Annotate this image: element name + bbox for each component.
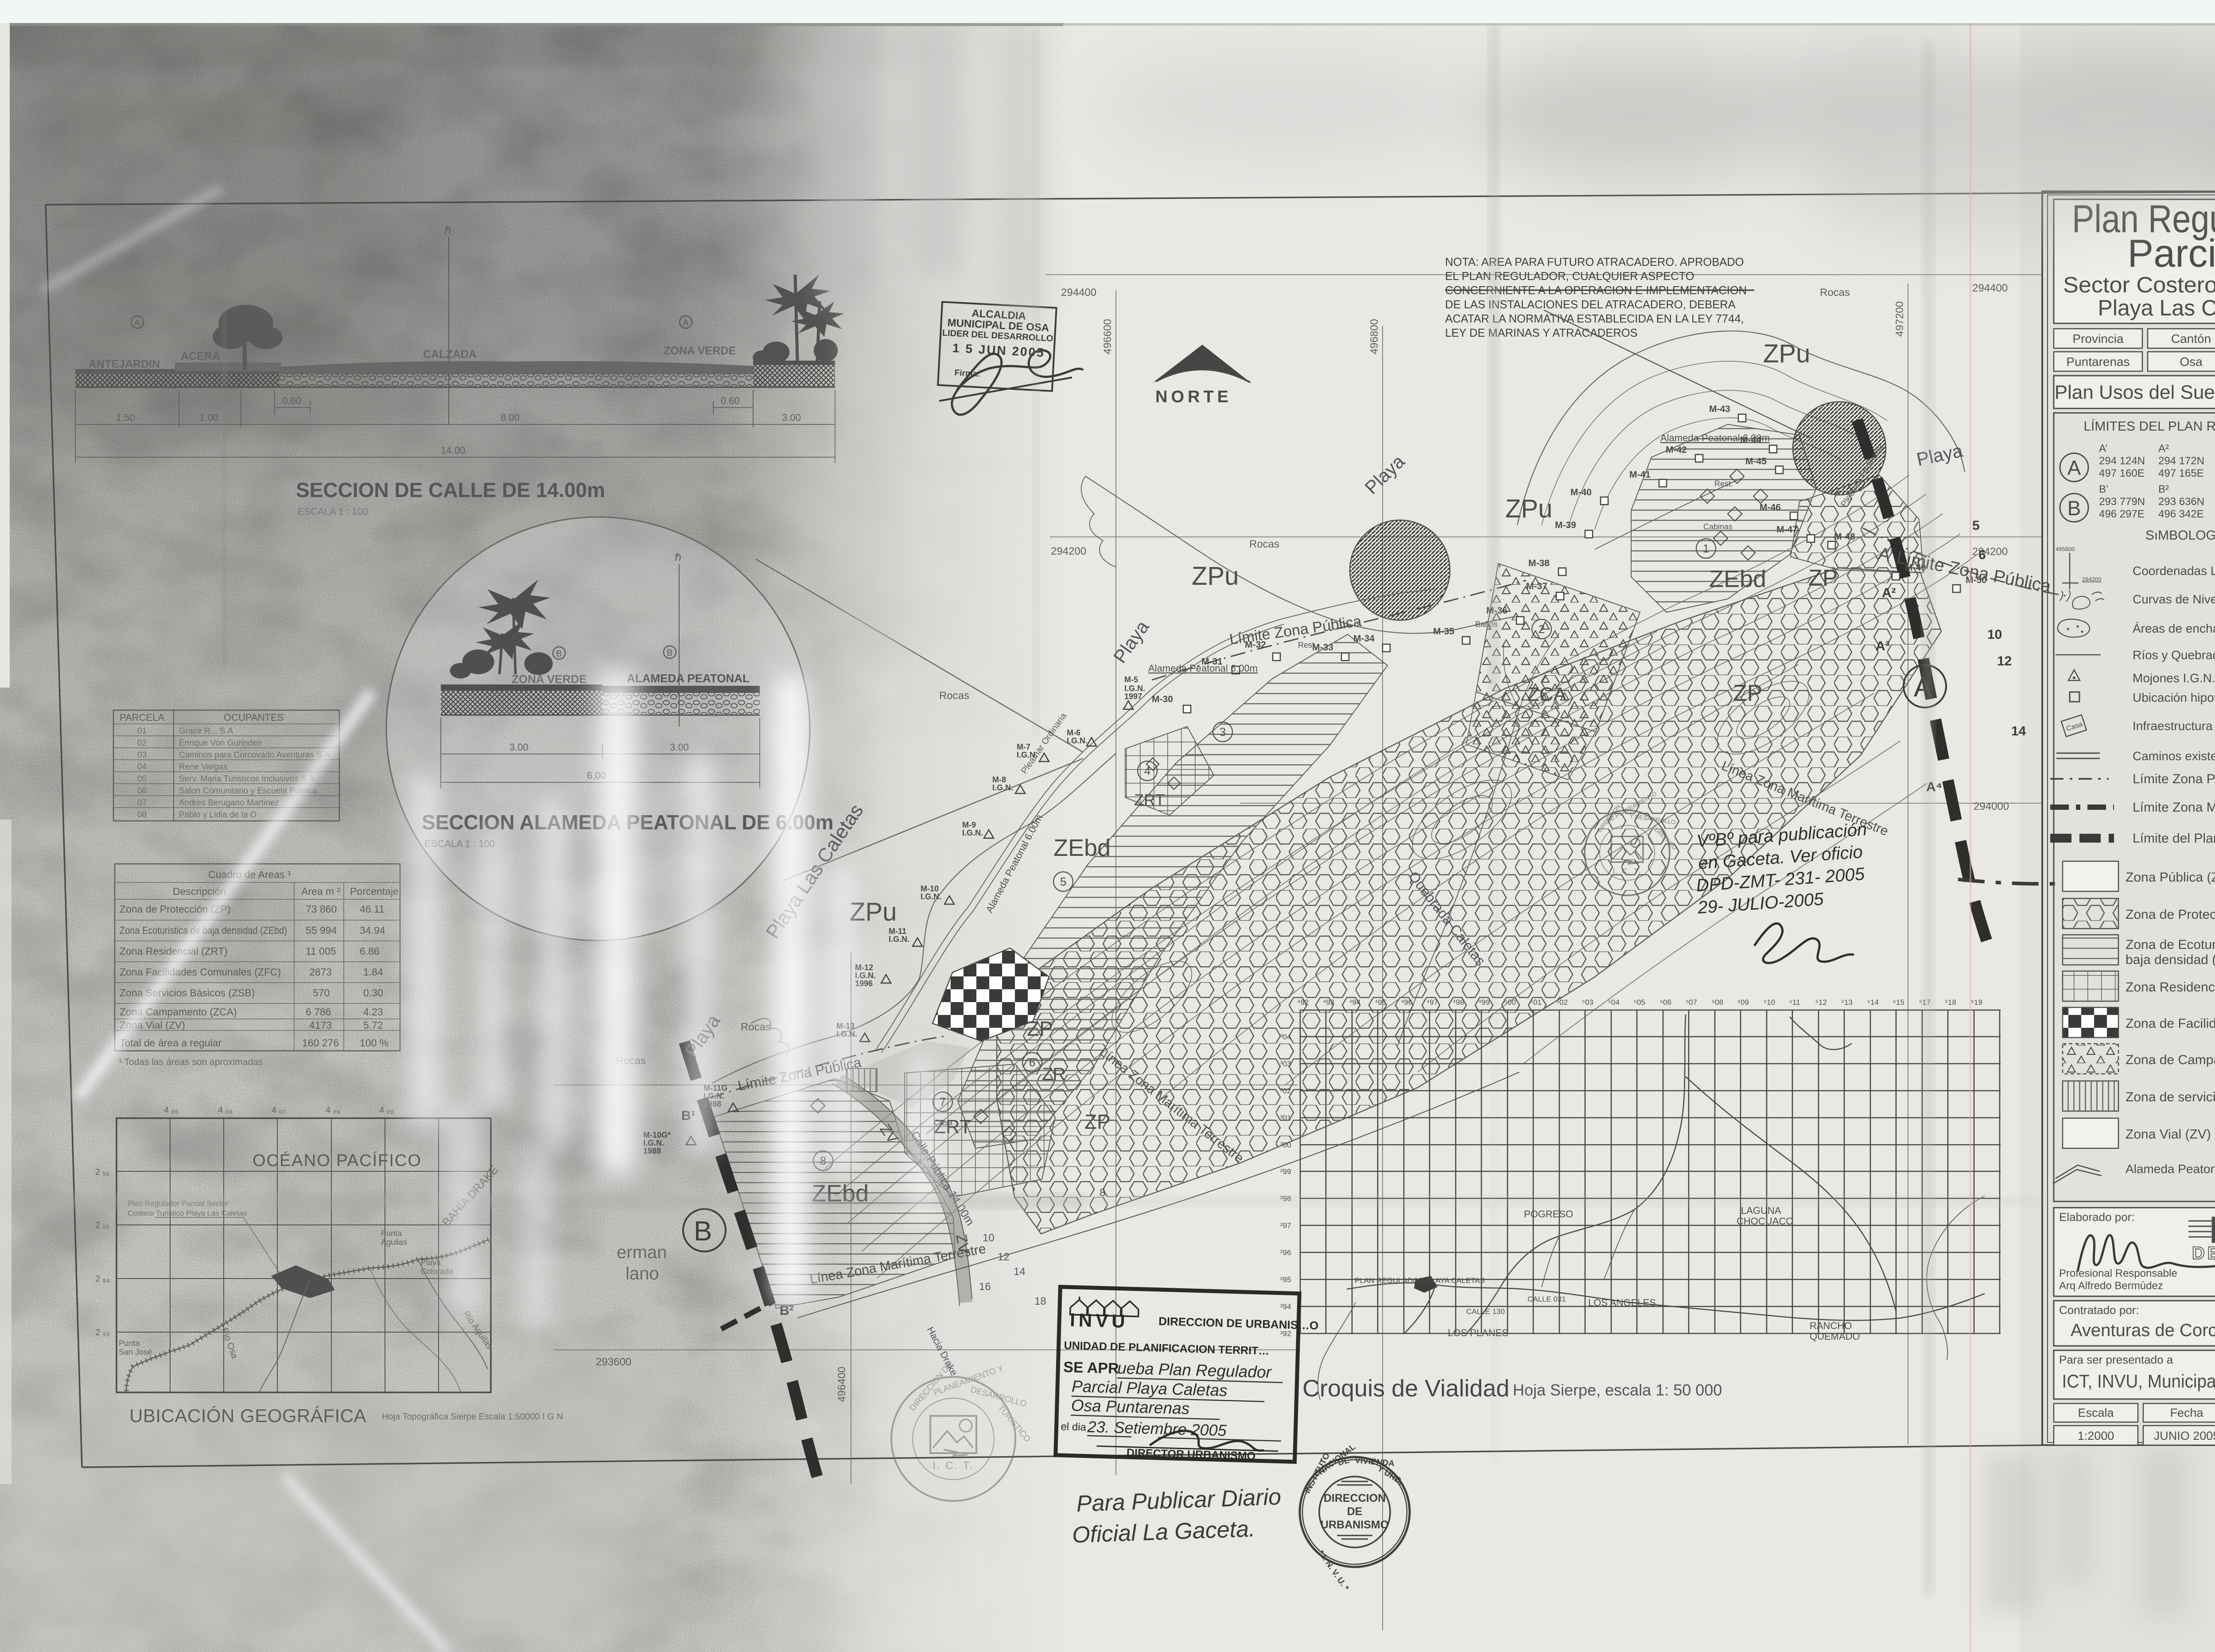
svg-text:3.00: 3.00 [782,412,801,423]
svg-text:07: 07 [137,798,147,808]
svg-text:ℏ: ℏ [675,552,681,564]
svg-text:M-39: M-39 [1555,520,1576,530]
svg-text:LOS ANGELES: LOS ANGELES [1588,1297,1656,1308]
svg-text:Porcentaje: Porcentaje [350,886,399,897]
svg-text:I.G.N.: I.G.N. [1067,736,1088,745]
svg-text:1: 1 [1703,542,1709,555]
svg-text:496 342E: 496 342E [2158,508,2204,520]
svg-text:B: B [2067,497,2081,520]
svg-text:Area m ²: Area m ² [301,886,341,897]
svg-text:11 005: 11 005 [306,945,336,957]
svg-text:ZPu: ZPu [1763,339,1810,368]
svg-text:⁴98: ⁴98 [1453,998,1464,1007]
svg-text:⁵01: ⁵01 [1530,998,1542,1007]
svg-text:M-48: M-48 [1834,532,1855,542]
svg-text:⁵04: ⁵04 [1608,998,1620,1007]
svg-text:³00: ³00 [1280,1141,1291,1149]
svg-text:Alameda Peatonal 6.00m: Alameda Peatonal 6.00m [1148,663,1258,674]
svg-text:M-7: M-7 [1017,742,1030,751]
svg-text:⁵18: ⁵18 [1945,998,1956,1007]
svg-text:Rest.: Rest. [1298,641,1317,649]
svg-text:Puntarenas: Puntarenas [2066,355,2130,369]
svg-text:4.23: 4.23 [363,1006,383,1018]
svg-text:M-10: M-10 [921,884,939,893]
svg-text:497 160E: 497 160E [2099,467,2145,479]
svg-text:M-35: M-35 [1433,626,1454,637]
svg-text:I. C. T.: I. C. T. [1613,867,1642,875]
svg-text:293 779N: 293 779N [2099,496,2145,508]
svg-text:M-6: M-6 [1067,728,1080,737]
svg-text:294400: 294400 [1972,282,2008,294]
svg-text:²99: ²99 [1280,1167,1291,1176]
svg-text:ANTEJARDIN: ANTEJARDIN [89,358,160,370]
svg-text:100 %: 100 % [360,1037,389,1049]
svg-text:SECCION DE CALLE DE 14.00m: SECCION DE CALLE DE 14.00m [296,478,605,501]
svg-text:4: 4 [1144,764,1150,777]
svg-text:I.G.N.: I.G.N. [889,935,909,944]
svg-text:I.G.N.: I.G.N. [962,828,983,837]
svg-text:ZP: ZP [1084,1110,1111,1133]
svg-text:I.G.N.: I.G.N. [643,1139,664,1147]
svg-text:293600: 293600 [596,1356,631,1368]
svg-text:DEPPAT: DEPPAT [2192,1244,2215,1263]
svg-text:ZONA VERDE: ZONA VERDE [512,672,587,686]
svg-text:Andres Berugano Martinez: Andres Berugano Martinez [179,798,279,808]
svg-text:I. C. T.: I. C. T. [933,1460,974,1472]
svg-text:Fecha: Fecha [2170,1406,2203,1419]
svg-text:Serv. Maria Turisticos Inclusi: Serv. Maria Turisticos Inclusivos S.A [179,774,315,784]
svg-text:Cabinas: Cabinas [1703,522,1733,531]
svg-text:294400: 294400 [1061,287,1096,299]
svg-text:294 172N: 294 172N [2158,455,2204,467]
svg-text:2873: 2873 [309,966,332,978]
svg-text:SıMBOLOGÍA: SıMBOLOGÍA [2145,528,2215,543]
svg-text:34.94: 34.94 [360,925,385,936]
svg-text:ZRT: ZRT [1134,791,1165,809]
svg-text:Áreas de encharcamiento: Áreas de encharcamiento [2133,622,2215,635]
svg-text:LOS PLANES: LOS PLANES [1448,1327,1508,1338]
svg-text:²96: ²96 [1280,1248,1291,1257]
svg-text:⁵00: ⁵00 [1504,998,1516,1007]
svg-text:⁴94: ⁴94 [1349,998,1360,1007]
svg-text:294 124N: 294 124N [2099,455,2145,467]
svg-text:Caminos para Corcovado Aventur: Caminos para Corcovado Aventuras S.A [179,750,330,760]
svg-text:294200: 294200 [1051,545,1086,557]
svg-text:ZV: ZV [952,1233,972,1255]
svg-text:RANCHO: RANCHO [1810,1320,1852,1331]
svg-text:Total de área a regular: Total de área a regular [120,1037,221,1049]
svg-text:baja densidad (ZEbd): baja densidad (ZEbd) [2126,952,2215,967]
svg-text:4 ₀₉: 4 ₀₉ [379,1105,394,1115]
svg-text:A²: A² [1882,586,1896,600]
svg-text:⁵15: ⁵15 [1893,998,1904,1007]
svg-text:Mojones I.G.N.: Mojones I.G.N. [2133,671,2215,685]
svg-text:Aventuras de Corcovado S.A.: Aventuras de Corcovado S.A. [2071,1321,2215,1340]
svg-text:Playa Las Caletas: Playa Las Caletas [2098,295,2215,320]
svg-text:el dia: el dia [1061,1421,1087,1434]
svg-text:8: 8 [1100,1187,1105,1199]
svg-text:LAGUNA: LAGUNA [1741,1205,1781,1216]
svg-text:Profesional Responsable: Profesional Responsable [2059,1267,2177,1279]
svg-text:UBICACIÓN GEOGRÁFICA: UBICACIÓN GEOGRÁFICA [129,1405,366,1426]
svg-text:Rocas: Rocas [1249,538,1279,550]
svg-text:0.30: 0.30 [363,987,383,999]
svg-text:⁵11: ⁵11 [1789,998,1800,1007]
svg-text:SE APR: SE APR [1063,1359,1119,1377]
svg-text:10: 10 [1987,627,2002,642]
svg-text:1.84: 1.84 [363,966,383,978]
svg-text:San José: San José [119,1348,152,1357]
svg-text:Pablo y Lidia de la O: Pablo y Lidia de la O [179,810,256,820]
svg-text:08: 08 [137,810,147,820]
svg-text:M-41: M-41 [1629,470,1651,480]
svg-text:INVU: INVU [1070,1309,1129,1332]
svg-text:NOTA: AREA PARA FUTURO ATRACAD: NOTA: AREA PARA FUTURO ATRACADERO. APROB… [1445,256,1744,268]
svg-text:CALLE 130: CALLE 130 [1466,1307,1505,1316]
svg-text:M-46: M-46 [1760,502,1781,513]
svg-text:⁵06: ⁵06 [1660,998,1671,1007]
svg-text:160 276: 160 276 [302,1037,339,1049]
svg-text:Zona de Ecoturistica de: Zona de Ecoturistica de [2126,937,2215,952]
svg-text:A: A [683,318,689,328]
svg-text:1988: 1988 [643,1147,661,1155]
svg-text:496800: 496800 [1368,319,1380,354]
svg-text:2: 2 [1539,622,1545,636]
svg-text:lano: lano [626,1264,659,1283]
svg-text:Zona Servicios Básicos (ZSB): Zona Servicios Básicos (ZSB) [120,987,255,999]
svg-text:6: 6 [1978,548,1986,562]
svg-text:Zona de Facilidades Comunales: Zona de Facilidades Comunales (ZFC) [2126,1016,2215,1031]
svg-text:294200: 294200 [2082,576,2101,583]
svg-text:ZPu: ZPu [1505,494,1552,523]
svg-text:³01: ³01 [1280,1114,1291,1122]
svg-text:Cuadro de Areas ¹: Cuadro de Areas ¹ [208,869,291,880]
svg-text:⁵14: ⁵14 [1867,998,1879,1007]
svg-text:M-38: M-38 [1528,558,1550,568]
svg-text:Parcial: Parcial [2128,231,2215,275]
svg-text:³03: ³03 [1280,1060,1291,1068]
svg-text:DE LAS INSTALACIONES DEL ATRAC: DE LAS INSTALACIONES DEL ATRACADERO, DEB… [1445,299,1736,311]
svg-text:Infraestructura existente: Infraestructura existente [2133,719,2215,733]
svg-text:294200: 294200 [1972,546,2008,558]
svg-text:DIRECCION: DIRECCION [1324,1492,1386,1504]
svg-text:Punta: Punta [381,1229,402,1238]
svg-text:5: 5 [1972,518,1980,533]
svg-text:ICT, INVU, Municipalidad de Os: ICT, INVU, Municipalidad de Osa [2062,1371,2215,1392]
svg-text:14.00: 14.00 [441,445,465,456]
svg-text:Hoja Sierpe, escala 1: 50 000: Hoja Sierpe, escala 1: 50 000 [1513,1381,1722,1399]
svg-text:12: 12 [1997,654,2012,669]
svg-text:M-9: M-9 [962,820,976,829]
svg-text:DE: DE [1347,1505,1363,1518]
svg-text:55 994: 55 994 [306,925,337,936]
svg-text:Osa: Osa [2180,355,2203,369]
svg-text:Coordenadas Lambert: Coordenadas Lambert [2133,564,2215,578]
svg-text:Zona de servicios básicos (ZSB: Zona de servicios básicos (ZSB) [2126,1090,2215,1104]
svg-text:⁵13: ⁵13 [1841,998,1853,1007]
svg-text:8: 8 [820,1154,826,1167]
svg-text:ZP: ZP [1808,565,1838,591]
svg-text:Zona de Campamento (ZCA): Zona de Campamento (ZCA) [2126,1053,2215,1067]
svg-text:Punta: Punta [119,1339,140,1348]
svg-text:Zona Pública (ZPu): Zona Pública (ZPu) [2126,870,2215,885]
svg-text:1996: 1996 [855,979,873,988]
svg-text:⁵03: ⁵03 [1582,998,1593,1007]
svg-text:0.60: 0.60 [721,395,740,406]
svg-text:Curvas de NiveL @ 2.00m: Curvas de NiveL @ 2.00m [2133,592,2215,606]
svg-text:M-45: M-45 [1745,456,1767,466]
svg-text:M-11: M-11 [889,927,906,936]
svg-text:CALZADA: CALZADA [423,348,477,361]
svg-text:Plan Usos del Suelo y Vialidad: Plan Usos del Suelo y Vialidad [2055,381,2215,403]
svg-text:6 786: 6 786 [306,1006,331,1018]
svg-text:²97: ²97 [1280,1221,1291,1230]
svg-text:⁵02: ⁵02 [1556,998,1568,1007]
svg-text:04: 04 [137,762,147,772]
svg-text:ACATAR LA NORMATIVA ESTABLECID: ACATAR LA NORMATIVA ESTABLECIDA EN LA LE… [1445,313,1744,325]
svg-text:⁵07: ⁵07 [1686,998,1697,1007]
svg-text:A’: A’ [2099,443,2108,455]
svg-text:³02: ³02 [1280,1087,1291,1095]
svg-text:2 ₉₄: 2 ₉₄ [95,1274,110,1284]
svg-text:294000: 294000 [1974,801,2009,812]
svg-text:02: 02 [137,739,147,748]
svg-text:I.G.N.: I.G.N. [855,971,876,980]
svg-text:5: 5 [1060,875,1066,888]
svg-text:ZR: ZR [1042,1065,1065,1084]
svg-text:2 ₉₆: 2 ₉₆ [95,1167,110,1177]
svg-text:⁴93: ⁴93 [1323,998,1334,1007]
svg-text:Casa: Casa [934,1118,953,1127]
svg-text:73 860: 73 860 [306,903,337,915]
svg-text:ZPu: ZPu [850,898,897,926]
svg-text:1:2000: 1:2000 [2078,1429,2114,1442]
svg-text:M-37: M-37 [1526,581,1547,591]
svg-text:I.G.N.: I.G.N. [921,892,941,901]
svg-text:⁴96: ⁴96 [1401,998,1412,1007]
svg-text:3.00: 3.00 [509,742,528,753]
svg-text:⁵10: ⁵10 [1764,998,1775,1007]
svg-text:6: 6 [1029,1056,1035,1069]
svg-text:4 ₀₇: 4 ₀₇ [272,1105,286,1115]
svg-text:4 ₀₈: 4 ₀₈ [326,1105,340,1115]
svg-text:I.G.N.: I.G.N. [1124,684,1145,693]
svg-text:ℏ: ℏ [444,225,451,237]
svg-text:4173: 4173 [309,1019,332,1031]
svg-text:Croquis de Vialidad: Croquis de Vialidad [1302,1375,1509,1402]
svg-text:⁵08: ⁵08 [1712,998,1723,1007]
svg-text:1.00: 1.00 [199,412,218,423]
svg-text:JUNIO 2005: JUNIO 2005 [2154,1429,2215,1442]
svg-text:03: 03 [137,750,147,760]
svg-text:ZPu: ZPu [1192,562,1239,591]
svg-text:Escala: Escala [2078,1406,2114,1419]
svg-text:Aguilas: Aguilas [381,1238,407,1247]
svg-text:2 ₉₅: 2 ₉₅ [95,1221,110,1230]
svg-text:4 ₀₆: 4 ₀₆ [218,1105,233,1115]
svg-text:M-12: M-12 [855,963,873,972]
svg-text:7: 7 [940,1095,946,1108]
svg-text:ZP: ZP [1027,1017,1053,1040]
svg-text:Alameda Peatonal 6.00m: Alameda Peatonal 6.00m [1660,432,1770,443]
svg-text:ZP: ZP [1733,680,1762,706]
svg-text:B: B [694,1216,712,1247]
svg-text:²94: ²94 [1280,1302,1291,1311]
svg-text:PLAN REGULADOR PLAYA CALETAS: PLAN REGULADOR PLAYA CALETAS [1355,1276,1485,1285]
svg-text:Rocas: Rocas [1820,287,1850,299]
svg-text:ZEbd: ZEbd [1709,566,1766,592]
svg-text:ZEbd: ZEbd [1053,835,1111,861]
svg-text:Zona Facilidades Comunales (ZF: Zona Facilidades Comunales (ZFC) [120,966,281,978]
svg-text:497 165E: 497 165E [2158,467,2204,479]
svg-text:Costero Turistico Playa Las Ca: Costero Turistico Playa Las Caletas [128,1209,247,1217]
svg-text:12: 12 [998,1251,1010,1263]
svg-text:05: 05 [137,774,147,784]
svg-text:Límite Zona Maritimo Terrestre: Límite Zona Maritimo Terrestre [2133,800,2215,815]
svg-text:Rene Vargas: Rene Vargas [179,762,228,772]
svg-text:496 297E: 496 297E [2099,508,2145,520]
svg-text:5.72: 5.72 [363,1019,383,1031]
svg-text:ESCALA 1 : 100: ESCALA 1 : 100 [298,506,368,517]
svg-text:M-5: M-5 [1124,675,1138,684]
svg-text:Zona Residencial (ZRT): Zona Residencial (ZRT) [120,945,228,957]
svg-text:M-47: M-47 [1776,525,1798,535]
svg-text:CALLE 031: CALLE 031 [1527,1295,1566,1303]
svg-text:A: A [134,318,140,328]
svg-text:CHOCUACO: CHOCUACO [1737,1216,1793,1227]
svg-text:3.00: 3.00 [670,742,689,753]
svg-text:A²: A² [2158,443,2169,455]
svg-text:Cantón: Cantón [2171,332,2211,346]
svg-text:4 ₀₅: 4 ₀₅ [164,1105,179,1115]
svg-text:1.50: 1.50 [116,412,135,423]
svg-text:Límite del Plan Regulador: Límite del Plan Regulador [2133,831,2215,846]
svg-text:¹ Todas las áreas son aproxi: ¹ Todas las áreas son aproximadas [119,1057,263,1067]
svg-text:PARCELA: PARCELA [120,712,164,723]
svg-text:Rocas: Rocas [939,690,969,702]
svg-text:496600: 496600 [1102,319,1114,354]
svg-text:⁵09: ⁵09 [1737,998,1749,1007]
svg-text:⁴99: ⁴99 [1478,998,1490,1007]
svg-text:Elaborado por:: Elaborado por: [2059,1210,2135,1224]
svg-text:8.00: 8.00 [501,412,520,423]
svg-text:OCÉANO PACÍFICO: OCÉANO PACÍFICO [253,1151,422,1170]
svg-text:3: 3 [1220,725,1226,739]
svg-text:Sector Costero Turístico: Sector Costero Turístico [2063,272,2215,297]
svg-text:ACERA: ACERA [181,350,220,362]
svg-text:B: B [556,649,562,659]
svg-text:Contratado por:: Contratado por: [2059,1303,2139,1317]
svg-text:NORTE: NORTE [1155,388,1232,406]
svg-text:495600: 495600 [2056,546,2075,552]
svg-text:01: 01 [137,727,147,736]
svg-text:Grace R... S.A: Grace R... S.A [179,727,233,736]
svg-text:ALAMEDA PEATONAL: ALAMEDA PEATONAL [627,672,750,685]
svg-text:OCUPANTES: OCUPANTES [224,712,284,723]
svg-text:URBANISMO: URBANISMO [1321,1519,1389,1531]
svg-text:46.11: 46.11 [360,903,385,915]
svg-text:M-8: M-8 [992,775,1006,784]
svg-text:Rest.: Rest. [1714,479,1733,488]
svg-text:M-34: M-34 [1353,634,1375,644]
svg-text:293 636N: 293 636N [2158,496,2204,508]
svg-text:LEY DE MARINAS Y ATRACADEROS: LEY DE MARINAS Y ATRACADEROS [1445,327,1638,339]
svg-text:Arq Alfredo Bermúdez: Arq Alfredo Bermúdez [2059,1280,2163,1292]
svg-text:²95: ²95 [1280,1275,1291,1284]
svg-text:EL PLAN REGULADOR, CUALQUIER A: EL PLAN REGULADOR, CUALQUIER ASPECTO [1445,270,1694,283]
svg-text:I.G.N.: I.G.N. [992,783,1013,792]
svg-text:POGRESO: POGRESO [1524,1209,1573,1220]
svg-text:10: 10 [983,1232,995,1244]
svg-text:Zona Residencial Turística (ZR: Zona Residencial Turística (ZRT) [2126,980,2215,995]
svg-text:Caminos existentes: Caminos existentes [2133,749,2215,763]
svg-text:06: 06 [137,786,147,796]
svg-text:18: 18 [1034,1295,1046,1307]
svg-text:B²: B² [2158,483,2169,495]
svg-text:497200: 497200 [1894,301,1906,337]
svg-text:M-30: M-30 [1152,694,1173,704]
svg-text:LÍMITES DEL PLAN REGULADOR: LÍMITES DEL PLAN REGULADOR [2083,419,2215,434]
svg-text:Ubicación hipotética de mojone: Ubicación hipotética de mojones [2133,691,2215,704]
svg-text:⁴97: ⁴97 [1426,998,1438,1007]
svg-text:⁵05: ⁵05 [1634,998,1645,1007]
svg-text:⁵19: ⁵19 [1971,998,1982,1007]
svg-text:Hoja Topográfica Sierpe Escal: Hoja Topográfica Sierpe Escala 1:50000 I… [382,1412,563,1422]
svg-text:B: B [667,648,672,658]
svg-text:Ríos y Quebradas: Ríos y Quebradas [2133,648,2215,662]
svg-text:QUEMADO: QUEMADO [1810,1331,1860,1342]
svg-text:A: A [2067,456,2081,479]
svg-text:1997: 1997 [1124,692,1142,701]
svg-text:16: 16 [979,1281,991,1293]
svg-text:M-43: M-43 [1709,404,1730,414]
svg-text:B’: B’ [2099,483,2108,495]
svg-text:Rocas: Rocas [741,1021,771,1033]
svg-text:Playa: Playa [421,1258,441,1267]
svg-text:Para ser presentado a: Para ser presentado a [2059,1353,2173,1366]
svg-text:Zona de Protección (ZP): Zona de Protección (ZP) [2126,907,2215,922]
svg-text:Alameda Peatonal: Alameda Peatonal [2126,1162,2215,1176]
svg-text:³04: ³04 [1280,1033,1291,1041]
svg-text:M-10G*: M-10G* [643,1131,671,1139]
svg-text:ZCA: ZCA [1527,684,1567,705]
svg-text:M-40: M-40 [1570,487,1592,498]
svg-text:B²: B² [780,1303,794,1318]
svg-text:Límite Zona Pública: Límite Zona Pública [2133,772,2215,786]
svg-text:0.60: 0.60 [282,395,301,406]
svg-text:⁴95: ⁴95 [1375,998,1386,1007]
svg-text:⁴92: ⁴92 [1297,998,1309,1007]
svg-text:A³: A³ [1876,639,1890,653]
svg-text:⁵12: ⁵12 [1815,998,1827,1007]
svg-text:M-42: M-42 [1666,445,1687,455]
svg-text:erman: erman [617,1243,667,1262]
svg-text:496400: 496400 [836,1367,848,1402]
svg-text:14: 14 [1014,1266,1026,1278]
svg-text:14: 14 [2011,724,2026,739]
svg-text:Provincia: Provincia [2072,332,2124,346]
svg-text:ZONA VERDE: ZONA VERDE [664,345,736,357]
svg-text:6.86: 6.86 [360,945,380,957]
svg-text:2 ₉₃: 2 ₉₃ [95,1328,110,1337]
svg-text:570: 570 [313,987,330,999]
svg-text:Enrique Von Gurinden: Enrique Von Gurinden [179,739,262,748]
svg-text:Zona Vial (ZV): Zona Vial (ZV) [2126,1127,2211,1142]
